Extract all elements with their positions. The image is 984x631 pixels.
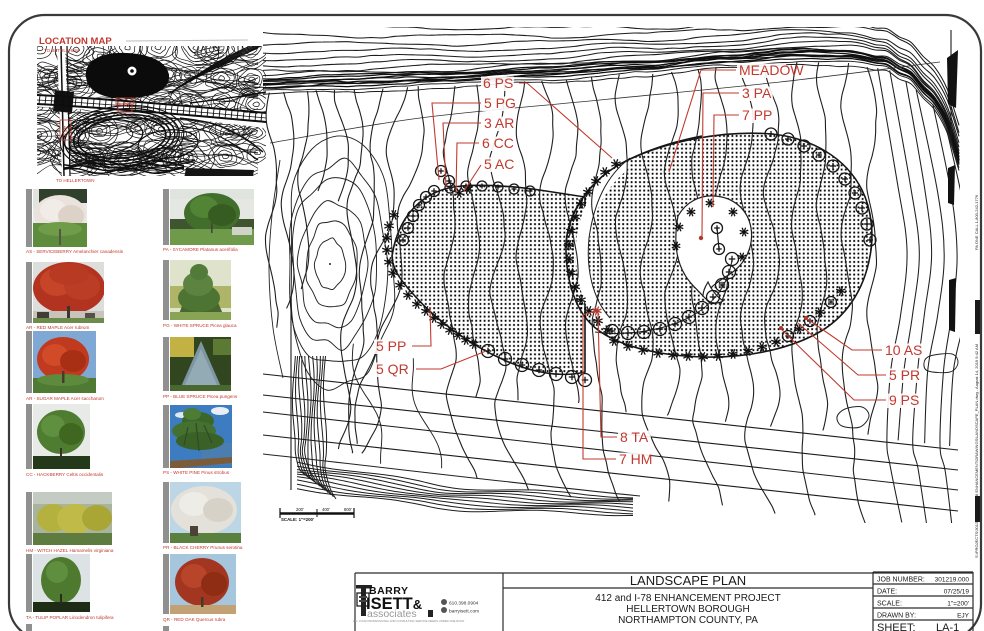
svg-text:5 QR: 5 QR: [376, 361, 409, 377]
svg-text:S:\PROJECTS\301219.000 412 I-7: S:\PROJECTS\301219.000 412 I-78 ENHANCEM…: [974, 344, 979, 558]
svg-text:PP - BLUE SPRUCE Picea pungens: PP - BLUE SPRUCE Picea pungens: [163, 394, 238, 399]
svg-text:7 PP: 7 PP: [742, 107, 772, 123]
svg-text:800': 800': [344, 507, 352, 512]
svg-text:PA - SYCAMORE Platanus acerifo: PA - SYCAMORE Platanus acerifolia: [163, 247, 238, 252]
svg-text:AR - SUGAR MAPLE Acer saccharu: AR - SUGAR MAPLE Acer saccharum: [26, 396, 104, 401]
svg-text:10 AS: 10 AS: [885, 342, 922, 358]
svg-text:5 PG: 5 PG: [484, 95, 516, 111]
svg-text:5 AC: 5 AC: [484, 156, 514, 172]
svg-text:6 PS: 6 PS: [483, 75, 513, 91]
svg-text:SCALE:: SCALE:: [877, 601, 902, 608]
svg-text:LOCATION MAP: LOCATION MAP: [39, 36, 112, 47]
svg-text:barryisett.com: barryisett.com: [449, 609, 479, 615]
svg-text:TO HELLERTOWN: TO HELLERTOWN: [56, 178, 95, 183]
svg-text:LA-1: LA-1: [936, 622, 959, 631]
svg-text:AR - RED MAPLE Acer rubrum: AR - RED MAPLE Acer rubrum: [26, 325, 89, 330]
svg-text:SCALE: 1"=200': SCALE: 1"=200': [281, 517, 314, 522]
svg-text:610.398.0904: 610.398.0904: [449, 601, 479, 607]
svg-text:412 and I-78 ENHANCEMENT PROJE: 412 and I-78 ENHANCEMENT PROJECT: [595, 593, 780, 604]
svg-text:HM - WITCH HAZEL Hamamelis vir: HM - WITCH HAZEL Hamamelis virginiana: [26, 548, 114, 553]
svg-text:PG - WHITE SPRUCE Picea glauca: PG - WHITE SPRUCE Picea glauca: [163, 323, 237, 328]
svg-text:301219.000: 301219.000: [935, 577, 970, 584]
svg-text:200': 200': [296, 507, 304, 512]
svg-text:7 HM: 7 HM: [619, 451, 652, 467]
svg-text:JOB NUMBER:: JOB NUMBER:: [877, 577, 925, 584]
svg-text:MEADOW: MEADOW: [739, 62, 804, 78]
svg-text:NORTHAMPTON COUNTY, PA: NORTHAMPTON COUNTY, PA: [618, 615, 758, 626]
svg-text:HELLERTOWN BOROUGH: HELLERTOWN BOROUGH: [626, 604, 750, 615]
svg-text:3 PA: 3 PA: [742, 85, 772, 101]
svg-text:EJY: EJY: [957, 613, 970, 620]
svg-text:PR - BLACK CHERRY Prunus serot: PR - BLACK CHERRY Prunus serotina: [163, 545, 243, 550]
svg-text:TA - TULIP POPLAR Liriodendron: TA - TULIP POPLAR Liriodendron tulipifer…: [26, 615, 114, 620]
svg-text:TO BETHLEHEM: TO BETHLEHEM: [44, 48, 79, 53]
svg-text:400': 400': [322, 507, 330, 512]
svg-text:DATE:: DATE:: [877, 589, 897, 596]
svg-text:PA ONE CALL 1-800-242-1776: PA ONE CALL 1-800-242-1776: [974, 194, 979, 250]
svg-text:CC - HACKBERRY Celtis occident: CC - HACKBERRY Celtis occidentalis: [26, 472, 104, 477]
svg-text:9 PS: 9 PS: [889, 392, 919, 408]
svg-text:5 PP: 5 PP: [376, 338, 406, 354]
svg-text:DRAWN BY:: DRAWN BY:: [877, 613, 916, 620]
svg-text:5 PR: 5 PR: [889, 367, 920, 383]
svg-text:8 TA: 8 TA: [620, 429, 649, 445]
svg-text:6 CC: 6 CC: [482, 135, 514, 151]
svg-text:3 AR: 3 AR: [484, 115, 514, 131]
svg-text:1"=200': 1"=200': [947, 601, 969, 608]
svg-text:412: 412: [61, 126, 67, 137]
svg-text:AS - SERVICEBERRY Amelanchier: AS - SERVICEBERRY Amelanchier canadensis: [26, 249, 124, 254]
svg-text:I-78: I-78: [119, 103, 130, 109]
svg-text:SHEET:: SHEET:: [877, 622, 916, 631]
svg-text:07/25/19: 07/25/19: [944, 589, 970, 596]
svg-text:LANDSCAPE PLAN: LANDSCAPE PLAN: [630, 573, 746, 588]
svg-text:PS - WHITE PINE Pinus strobus: PS - WHITE PINE Pinus strobus: [163, 470, 230, 475]
svg-text:QR - RED OAK Quercus rubra: QR - RED OAK Quercus rubra: [163, 617, 226, 622]
svg-text:ALL YOUR PROFESSIONAL AND CONS: ALL YOUR PROFESSIONAL AND CONSULTING SER…: [353, 619, 465, 623]
